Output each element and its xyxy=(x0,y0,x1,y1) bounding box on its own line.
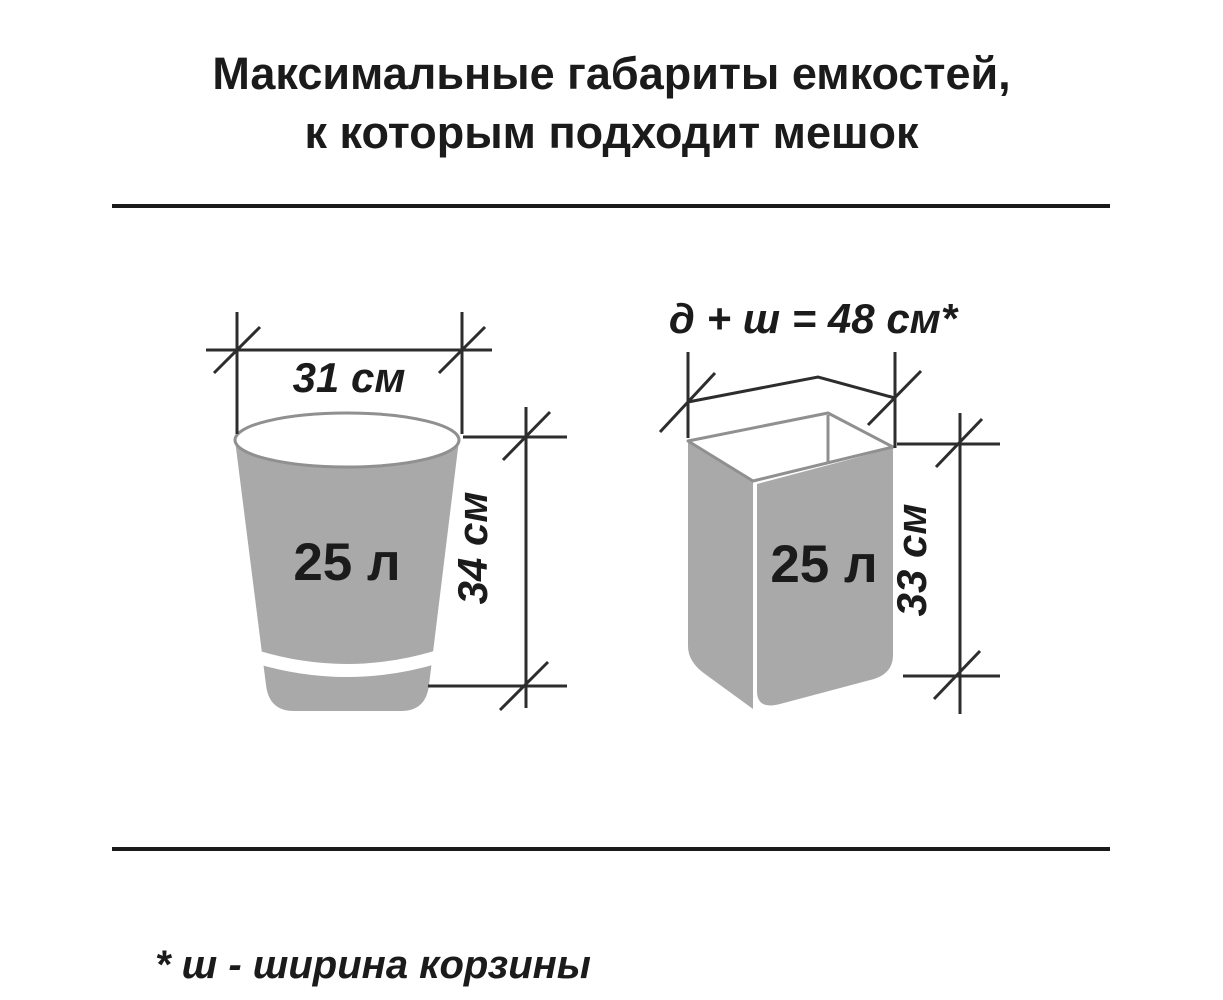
basket-sum-label: д + ш = 48 см* xyxy=(669,295,959,342)
basket-sum-dim-line xyxy=(688,377,895,402)
basket-volume-label: 25 л xyxy=(770,535,877,594)
page-root: { "title": { "line1": "Максимальные габа… xyxy=(0,0,1223,1000)
bucket-rim xyxy=(235,413,459,467)
bucket-figure: 25 л 31 см 34 см xyxy=(206,312,567,711)
basket-height-dimension: 33 см xyxy=(888,413,1000,714)
basket-left-face xyxy=(688,441,753,709)
bucket-height-label: 34 см xyxy=(449,492,496,605)
basket-height-label: 33 см xyxy=(888,504,935,617)
bucket-width-label: 31 см xyxy=(293,354,406,401)
footnote: * ш - ширина корзины д - длина корзины xyxy=(155,858,591,1000)
bottom-divider xyxy=(112,847,1110,851)
bucket-volume-label: 25 л xyxy=(293,533,400,592)
footnote-line-1: * ш - ширина корзины xyxy=(155,944,591,987)
basket-figure: 25 л д + ш = 48 см* 33 см xyxy=(660,295,1000,714)
